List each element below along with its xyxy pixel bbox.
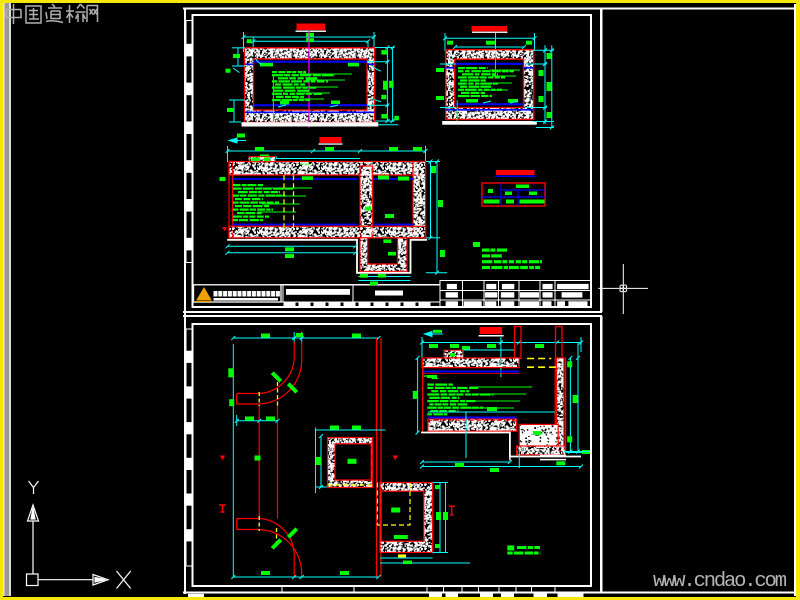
svg-text:www.cndao.com: www.cndao.com	[653, 570, 787, 593]
